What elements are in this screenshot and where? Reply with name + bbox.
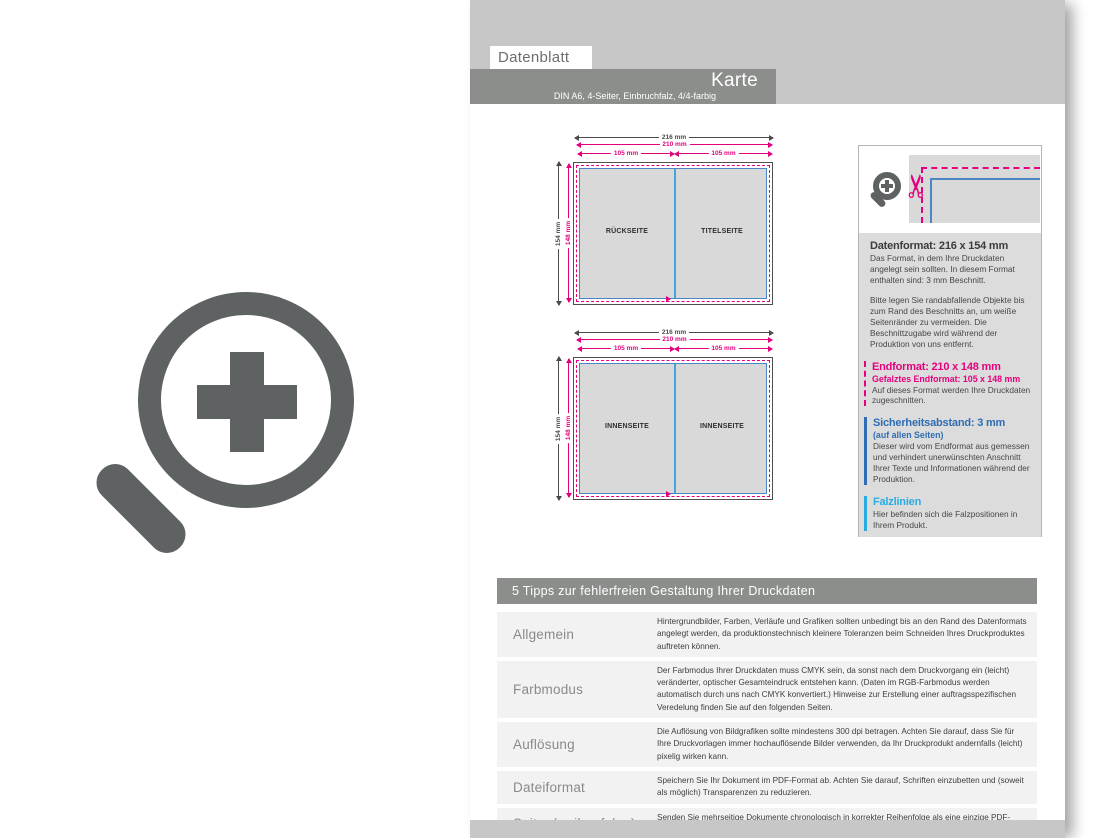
tips-table: 5 Tipps zur fehlerfreien Gestaltung Ihre… [497, 578, 1037, 838]
dimension-end-width: 210 mm [577, 339, 772, 340]
dimension-label: 105 mm [708, 345, 738, 353]
section-title: Endformat: 210 x 148 mm [872, 361, 1033, 373]
dimension-label: 148 mm [565, 413, 573, 443]
panel-label-left: INNENSEITE [579, 423, 675, 430]
product-subtitle: DIN A6, 4-Seiter, Einbruchfalz, 4/4-farb… [554, 91, 716, 101]
dimension-end-height: 148 mm [568, 164, 569, 302]
row-text: Hintergrundbilder, Farben, Verläufe und … [657, 612, 1037, 657]
dimension-half-left: 105 mm [578, 348, 674, 349]
table-row: Farbmodus Der Farbmodus Ihrer Druckdaten… [497, 661, 1037, 718]
section-falzlinien: Falzlinien Hier befinden sich die Falzpo… [864, 496, 1033, 531]
dimension-label: 210 mm [659, 336, 689, 344]
panel-label-left: RÜCKSEITE [579, 228, 675, 235]
dimension-half-left: 105 mm [578, 153, 674, 154]
section-paragraph: Das Format, in dem Ihre Druckdaten angel… [870, 253, 1033, 286]
section-paragraph: Hier befinden sich die Falzpositionen in… [873, 509, 1033, 531]
panel-label-right: INNENSEITE [676, 423, 768, 430]
table-row: Allgemein Hintergrundbilder, Farben, Ver… [497, 612, 1037, 657]
safety-line-h [930, 178, 1040, 180]
bleed-dashed-line-h [921, 167, 1040, 169]
page-footer-band [470, 820, 1065, 838]
dimension-total-height: 154 mm [558, 162, 559, 305]
table-row: Auflösung Die Auflösung von Bildgrafiken… [497, 722, 1037, 767]
dimension-label: 148 mm [565, 218, 573, 248]
row-label: Allgemein [497, 612, 657, 657]
info-panel-text: Datenformat: 216 x 154 mm Das Format, in… [859, 233, 1041, 537]
row-text: Der Farbmodus Ihrer Druckdaten muss CMYK… [657, 661, 1037, 718]
info-panel-illustration: ✂ [859, 146, 1041, 233]
section-subtitle: (auf allen Seiten) [873, 430, 1033, 440]
fold-mark-icon [666, 491, 671, 497]
row-label: Auflösung [497, 722, 657, 767]
plus-horizontal-bar [881, 184, 893, 188]
sheet-type-label: Datenblatt [490, 46, 592, 69]
screenshot-stage: Datenblatt Karte DIN A6, 4-Seiter, Einbr… [0, 0, 1117, 838]
zoom-plus-icon-small [873, 172, 901, 200]
section-title: Datenformat: 216 x 154 mm [870, 240, 1033, 252]
dimension-half-right: 105 mm [675, 153, 772, 154]
plus-horizontal-bar [197, 385, 297, 419]
dimension-label: 154 mm [555, 218, 563, 248]
format-info-panel: ✂ Datenformat: 216 x 154 mm Das Format, … [858, 145, 1042, 537]
section-title: Sicherheitsabstand: 3 mm [873, 417, 1033, 429]
dimension-end-width: 210 mm [577, 144, 772, 145]
dimension-label: 210 mm [659, 141, 689, 149]
datasheet-page: Datenblatt Karte DIN A6, 4-Seiter, Einbr… [470, 0, 1065, 838]
fold-mark-icon [666, 296, 671, 302]
dimension-label: 105 mm [611, 345, 641, 353]
dimension-total-width: 216 mm [575, 332, 773, 333]
dimension-total-height: 154 mm [558, 357, 559, 500]
dimension-label: 105 mm [611, 150, 641, 158]
fold-diagram-outside: 216 mm 210 mm 105 mm 105 mm 154 mm 148 m… [555, 128, 778, 318]
row-label: Farbmodus [497, 661, 657, 718]
section-paragraph: Bitte legen Sie randabfallende Objekte b… [870, 295, 1033, 350]
fold-diagram-inside: 216 mm 210 mm 105 mm 105 mm 154 mm 148 m… [555, 323, 778, 513]
section-sicherheitsabstand: Sicherheitsabstand: 3 mm (auf allen Seit… [864, 417, 1033, 485]
dimension-half-right: 105 mm [675, 348, 772, 349]
dimension-total-width: 216 mm [575, 137, 773, 138]
product-title-bar: Karte DIN A6, 4-Seiter, Einbruchfalz, 4/… [470, 69, 776, 104]
section-paragraph: Auf dieses Format werden Ihre Druckdaten… [872, 385, 1033, 407]
row-text: Die Auflösung von Bildgrafiken sollte mi… [657, 722, 1037, 767]
row-label: Dateiformat [497, 771, 657, 804]
scissors-icon: ✂ [900, 173, 932, 200]
product-title: Karte [711, 70, 758, 92]
section-paragraph: Dieser wird vom Endformat aus gemessen u… [873, 441, 1033, 485]
dimension-label: 154 mm [555, 413, 563, 443]
row-text: Speichern Sie Ihr Dokument im PDF-Format… [657, 771, 1037, 804]
dimension-label: 105 mm [708, 150, 738, 158]
dimension-end-height: 148 mm [568, 359, 569, 497]
zoom-plus-icon [138, 292, 354, 508]
section-datenformat: Datenformat: 216 x 154 mm Das Format, in… [864, 240, 1033, 350]
tips-table-title: 5 Tipps zur fehlerfreien Gestaltung Ihre… [497, 578, 1037, 604]
panel-label-right: TITELSEITE [676, 228, 768, 235]
section-endformat: Endformat: 210 x 148 mm Gefalztes Endfor… [864, 361, 1033, 407]
section-subtitle: Gefalztes Endformat: 105 x 148 mm [872, 374, 1033, 384]
table-row: Dateiformat Speichern Sie Ihr Dokument i… [497, 771, 1037, 804]
section-title: Falzlinien [873, 496, 1033, 508]
